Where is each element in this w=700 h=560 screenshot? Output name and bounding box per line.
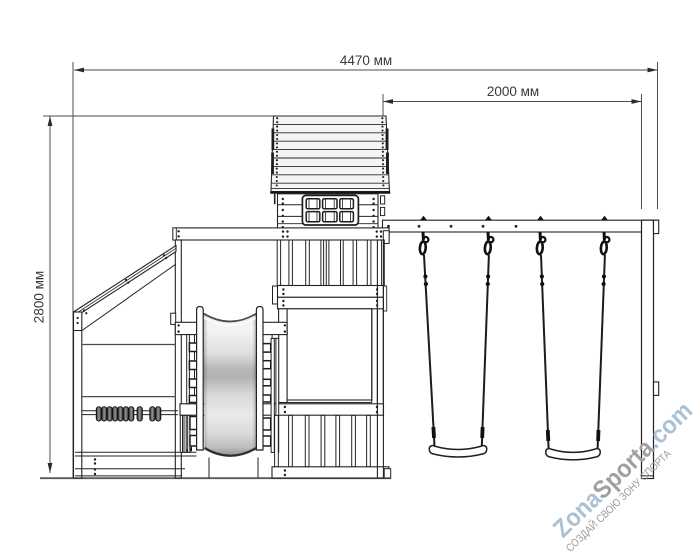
svg-text:4470 мм: 4470 мм: [340, 53, 392, 68]
svg-text:2000 мм: 2000 мм: [487, 84, 539, 99]
svg-text:2800 мм: 2800 мм: [32, 271, 47, 323]
